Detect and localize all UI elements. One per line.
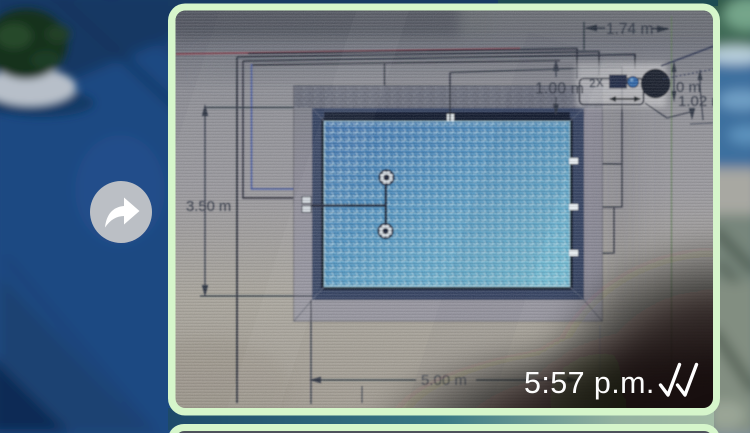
svg-text:5:57 p.m.: 5:57 p.m. [524,366,655,400]
